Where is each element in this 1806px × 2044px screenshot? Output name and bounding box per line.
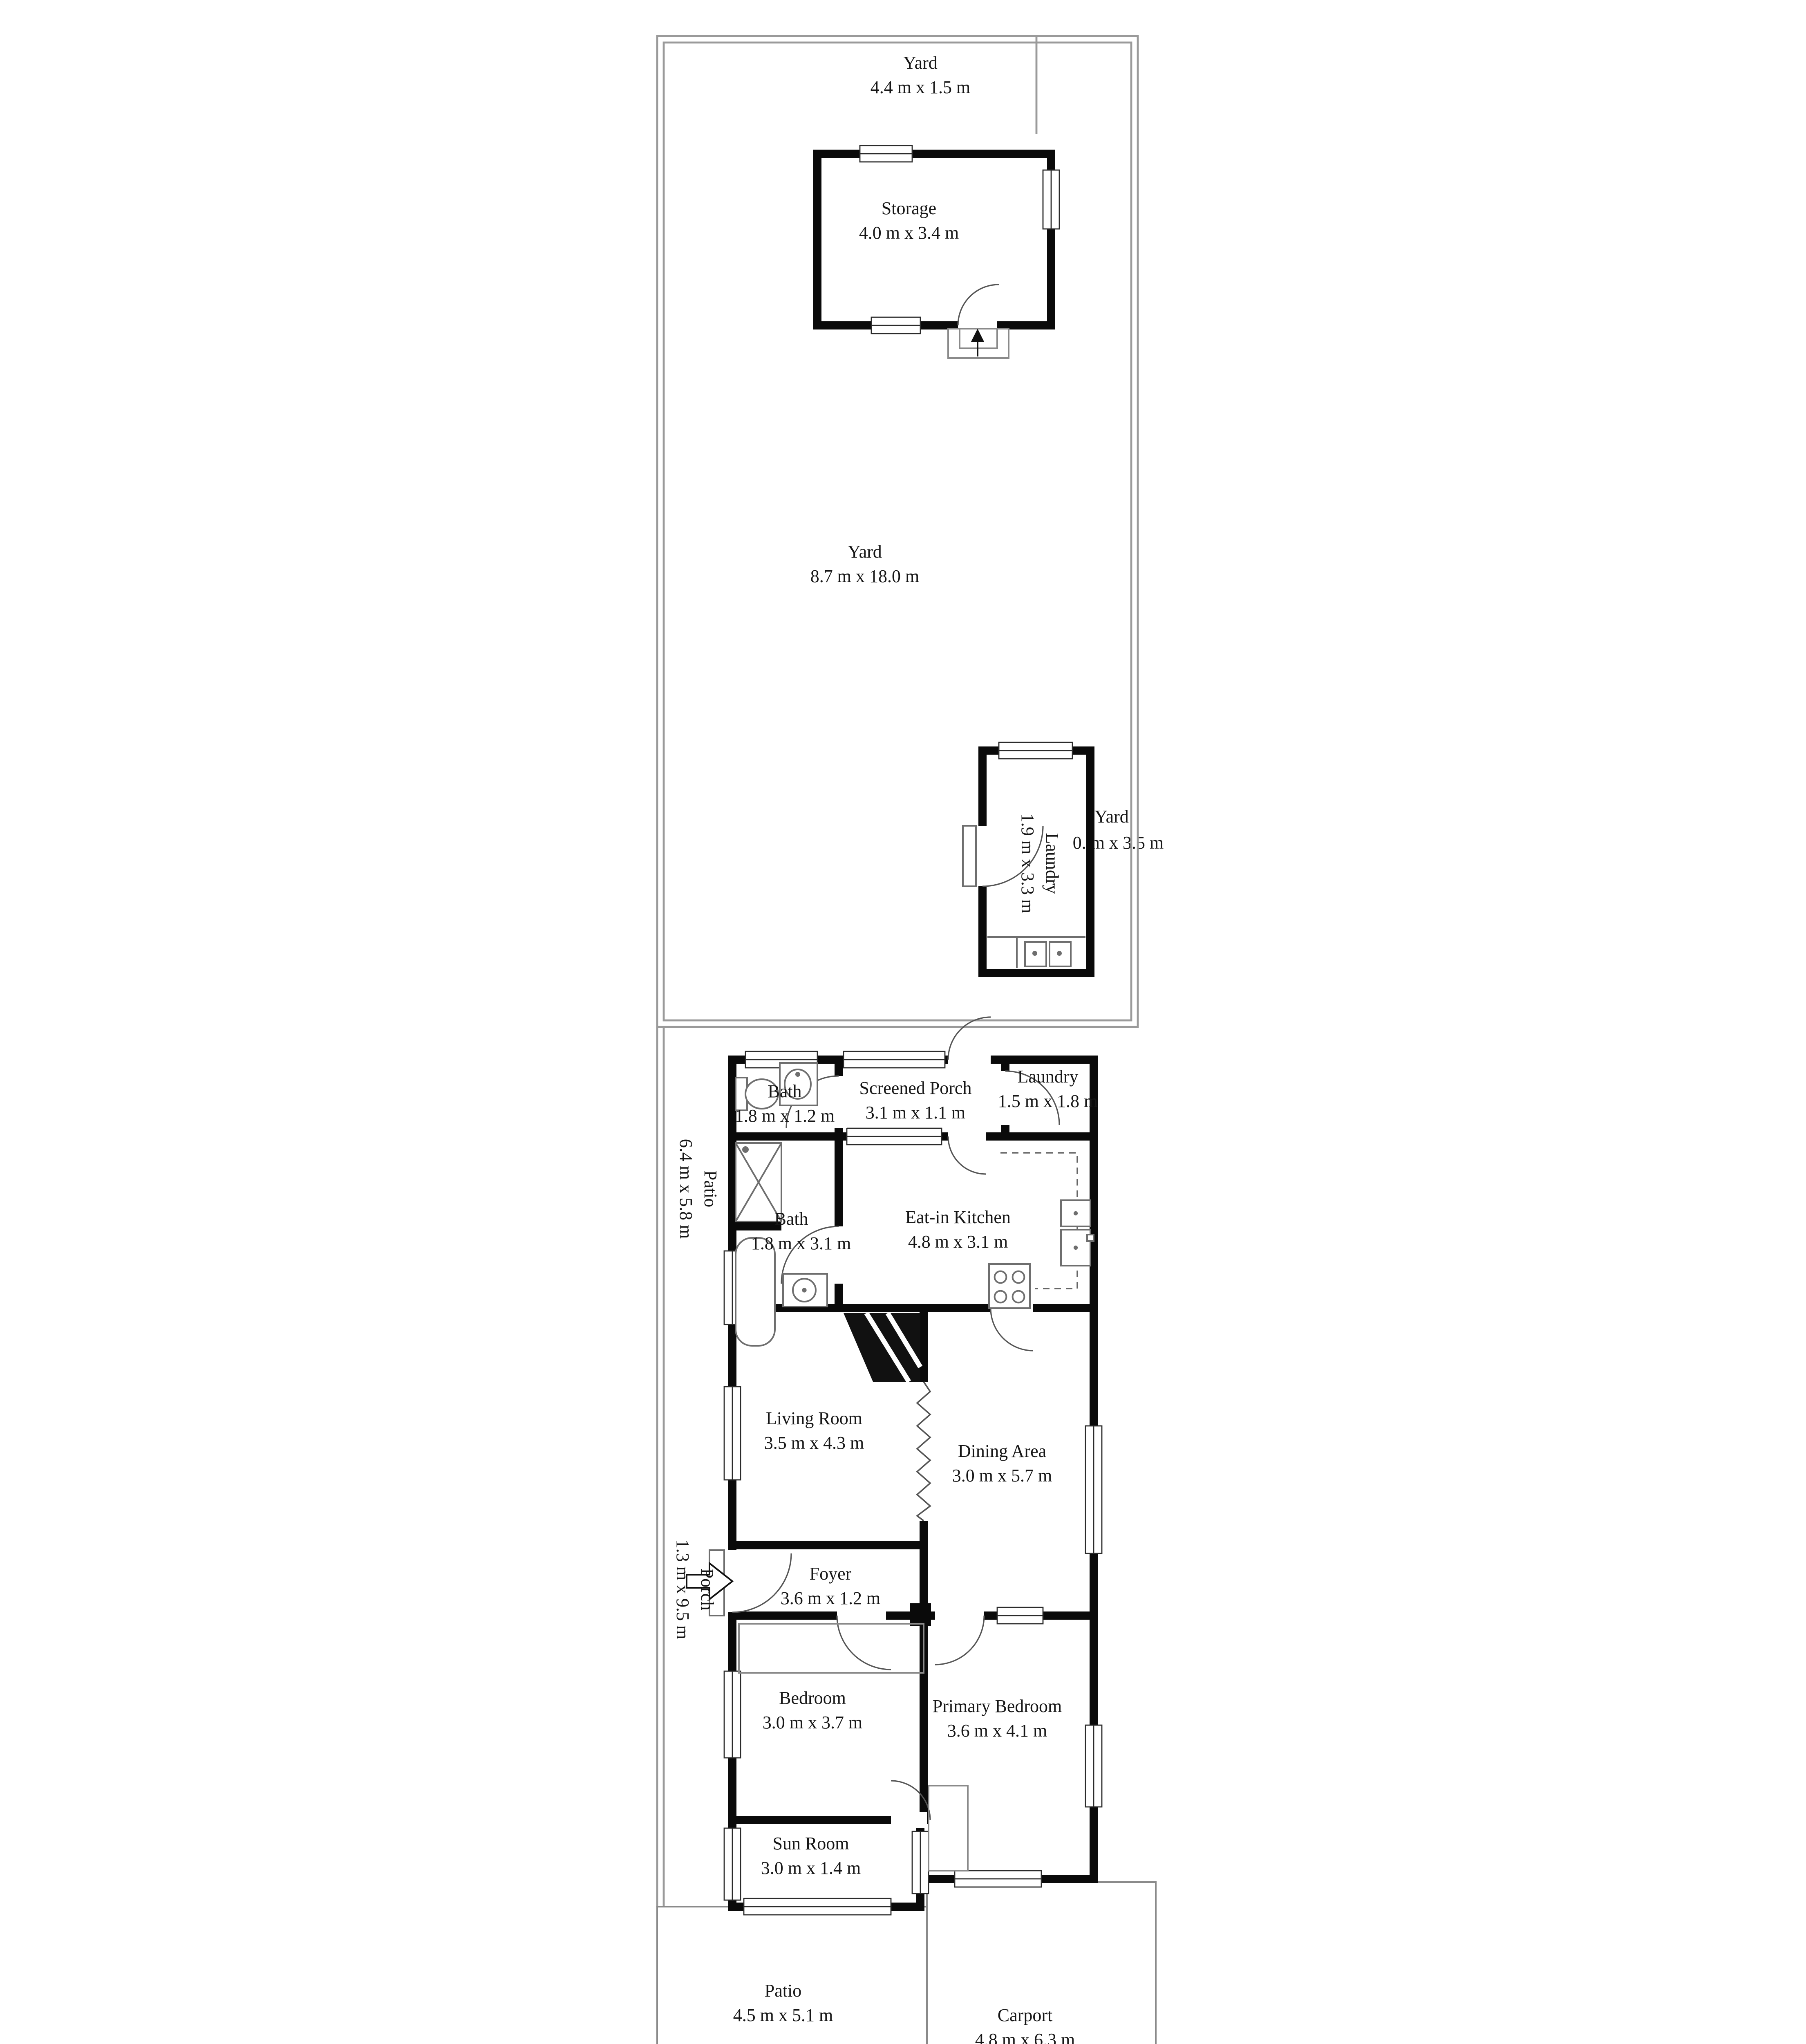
svg-text:4.8 m x 3.1 m: 4.8 m x 3.1 m	[908, 1232, 1008, 1252]
svg-text:6.4 m x 5.8 m: 6.4 m x 5.8 m	[676, 1139, 696, 1239]
svg-text:Dining Area: Dining Area	[958, 1441, 1046, 1461]
svg-text:1.5 m x 1.8 m: 1.5 m x 1.8 m	[998, 1091, 1098, 1111]
page-background	[0, 0, 1806, 2044]
floor-plan-page: Yard 0. m x 3.5 m	[0, 0, 1806, 2044]
svg-text:3.5 m x 4.3 m: 3.5 m x 4.3 m	[764, 1433, 864, 1453]
svg-text:Storage: Storage	[882, 198, 936, 218]
stove-icon	[989, 1264, 1030, 1308]
svg-text:Bath: Bath	[768, 1081, 801, 1101]
window-marker	[999, 742, 1072, 759]
door-leaf	[963, 826, 976, 886]
svg-text:Laundry: Laundry	[1017, 1067, 1078, 1087]
svg-text:Sun Room: Sun Room	[772, 1833, 849, 1853]
svg-text:1.9 m x 3.3 m: 1.9 m x 3.3 m	[1018, 814, 1038, 913]
svg-text:3.6 m x 1.2 m: 3.6 m x 1.2 m	[781, 1588, 880, 1608]
svg-text:3.6 m x 4.1 m: 3.6 m x 4.1 m	[947, 1721, 1047, 1741]
svg-text:1.8 m x 3.1 m: 1.8 m x 3.1 m	[751, 1233, 851, 1253]
svg-text:Foyer: Foyer	[810, 1564, 852, 1584]
svg-text:Carport: Carport	[998, 2005, 1052, 2025]
svg-text:Laundry: Laundry	[1042, 833, 1062, 894]
svg-text:Patio: Patio	[700, 1170, 721, 1207]
svg-text:1.3 m x 9.5 m: 1.3 m x 9.5 m	[673, 1540, 693, 1639]
svg-text:Bedroom: Bedroom	[779, 1688, 846, 1708]
svg-text:4.5 m x 5.1 m: 4.5 m x 5.1 m	[733, 2005, 833, 2025]
bathtub-icon	[736, 1238, 775, 1346]
svg-text:4.0 m x 3.4 m: 4.0 m x 3.4 m	[859, 223, 959, 243]
svg-text:Patio: Patio	[765, 1981, 801, 2001]
svg-text:Living Room: Living Room	[766, 1408, 862, 1428]
svg-text:Porch: Porch	[697, 1569, 717, 1611]
floor-plan-canvas: Yard 0. m x 3.5 m	[0, 0, 1806, 2044]
svg-text:Eat-in Kitchen: Eat-in Kitchen	[905, 1207, 1011, 1227]
svg-text:1.8 m x 1.2 m: 1.8 m x 1.2 m	[735, 1106, 835, 1126]
svg-text:Screened Porch: Screened Porch	[859, 1078, 972, 1098]
svg-text:Yard: Yard	[848, 542, 882, 562]
svg-text:4.4 m x 1.5 m: 4.4 m x 1.5 m	[871, 77, 970, 97]
svg-text:Yard: Yard	[1094, 807, 1129, 827]
svg-text:4.8 m x 6.3 m: 4.8 m x 6.3 m	[975, 2030, 1075, 2044]
svg-text:Yard: Yard	[903, 53, 938, 73]
svg-text:Bath: Bath	[774, 1209, 808, 1229]
svg-text:8.7 m x 18.0 m: 8.7 m x 18.0 m	[810, 566, 919, 586]
svg-text:3.1 m x 1.1 m: 3.1 m x 1.1 m	[866, 1103, 965, 1123]
svg-text:3.0 m x 1.4 m: 3.0 m x 1.4 m	[761, 1858, 861, 1878]
svg-text:Primary Bedroom: Primary Bedroom	[933, 1696, 1062, 1716]
svg-text:3.0 m x 3.7 m: 3.0 m x 3.7 m	[763, 1712, 862, 1732]
svg-text:3.0 m x 5.7 m: 3.0 m x 5.7 m	[952, 1466, 1052, 1486]
wall-pillar	[911, 1604, 930, 1625]
